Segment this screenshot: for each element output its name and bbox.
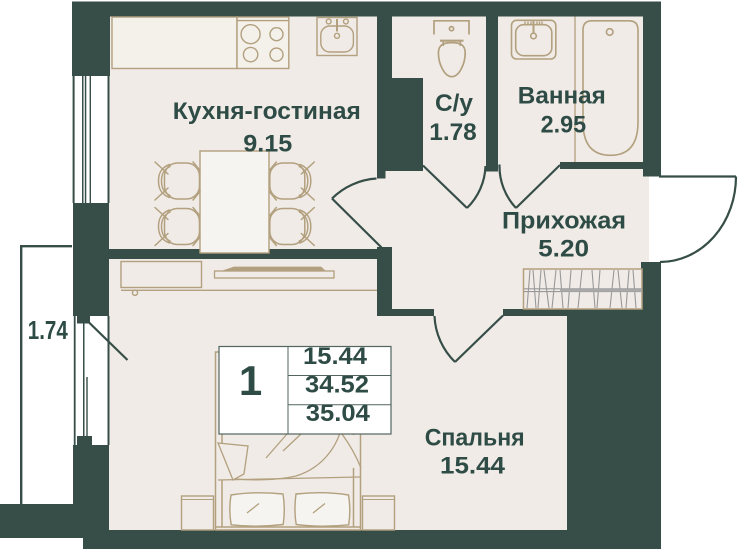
- svg-text:Кухня-гостиная: Кухня-гостиная: [173, 98, 361, 125]
- svg-text:5.20: 5.20: [538, 236, 589, 263]
- svg-text:34.52: 34.52: [305, 372, 369, 399]
- svg-text:1: 1: [239, 357, 262, 404]
- svg-text:С/у: С/у: [435, 90, 473, 117]
- svg-text:Прихожая: Прихожая: [502, 207, 626, 234]
- svg-text:Ванная: Ванная: [518, 82, 606, 109]
- svg-text:15.44: 15.44: [440, 452, 505, 479]
- svg-text:35.04: 35.04: [306, 400, 371, 427]
- svg-text:2.95: 2.95: [541, 112, 587, 139]
- svg-text:1.74: 1.74: [28, 317, 69, 345]
- svg-text:15.44: 15.44: [303, 343, 368, 370]
- svg-text:1.78: 1.78: [429, 119, 477, 146]
- svg-text:9.15: 9.15: [243, 131, 292, 158]
- svg-text:Спальня: Спальня: [425, 424, 525, 451]
